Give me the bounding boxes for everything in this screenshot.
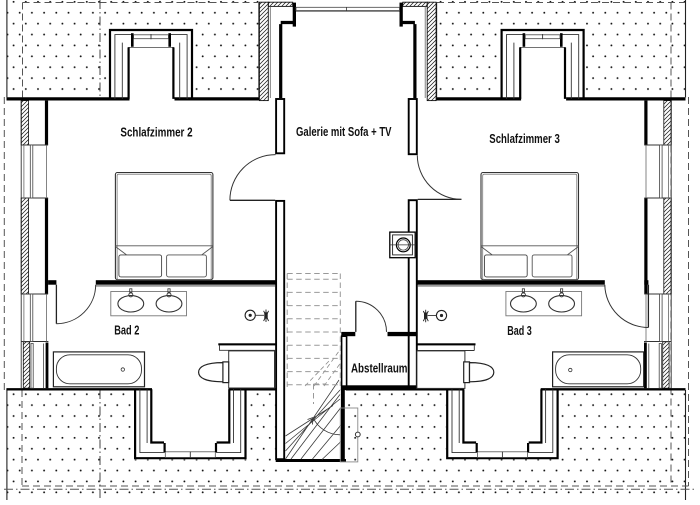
svg-text:Abstellraum: Abstellraum [351,362,408,376]
svg-text:Bad 3: Bad 3 [507,323,532,338]
svg-text:Galerie mit Sofa + TV: Galerie mit Sofa + TV [296,125,392,139]
svg-text:Schlafzimmer 3: Schlafzimmer 3 [489,131,560,146]
svg-text:Bad 2: Bad 2 [114,322,139,337]
svg-text:Schlafzimmer 2: Schlafzimmer 2 [120,125,192,140]
